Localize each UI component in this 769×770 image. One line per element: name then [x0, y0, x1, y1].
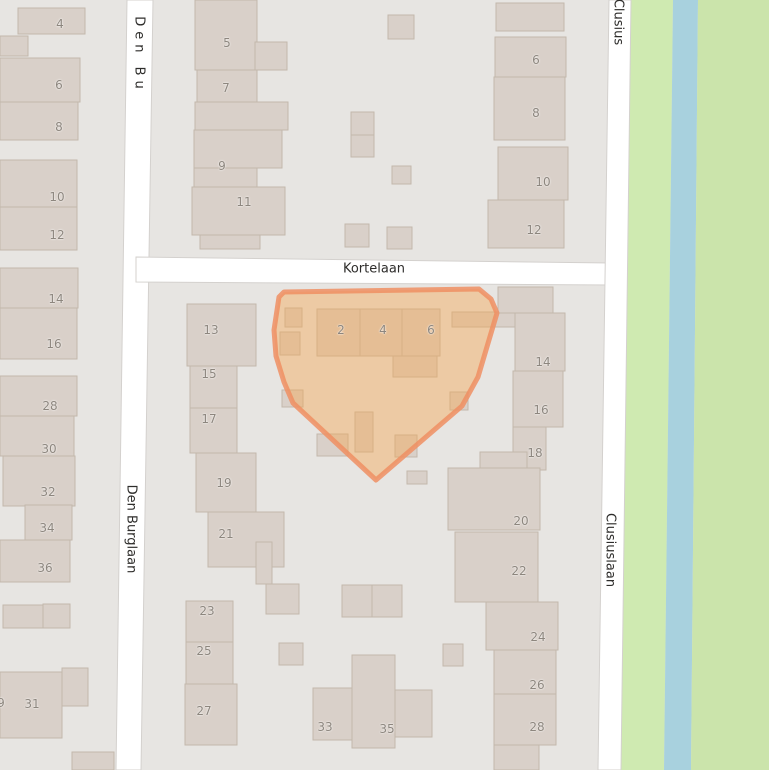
building-footprint [266, 584, 299, 614]
building-footprint [494, 694, 556, 745]
building-footprint [392, 166, 411, 184]
building-footprint [455, 532, 538, 602]
building-footprint [407, 471, 427, 484]
building-footprint [0, 36, 28, 56]
building-footprint [498, 147, 568, 200]
building-footprint [3, 605, 43, 628]
building-footprint [443, 644, 463, 666]
building-footprint [395, 690, 432, 737]
building-footprint [200, 235, 260, 249]
road-den-burglaan [116, 0, 153, 770]
building-footprint [197, 70, 257, 106]
building-footprint [0, 308, 77, 359]
building-footprint [352, 655, 395, 748]
building-footprint [0, 102, 78, 140]
building-footprint [0, 268, 78, 308]
building-footprint [495, 37, 566, 77]
building-footprint [0, 672, 62, 738]
building-footprint [0, 540, 70, 582]
building-footprint [448, 468, 540, 530]
building-footprint [0, 376, 77, 416]
building-footprint [255, 42, 287, 70]
building-footprint [186, 642, 233, 684]
building-footprint [185, 684, 237, 745]
building-footprint [190, 408, 237, 453]
building-footprint [192, 187, 285, 235]
building-footprint [194, 130, 282, 168]
building-footprint [3, 456, 75, 506]
highlight-layer [274, 289, 497, 480]
building-footprint [313, 688, 352, 740]
building-footprint [62, 668, 88, 706]
grass-east-bank [691, 0, 769, 770]
building-footprint [72, 752, 114, 770]
building-footprint [25, 505, 72, 540]
road-kortelaan [136, 257, 611, 285]
building-footprint [195, 102, 288, 130]
building-footprint [387, 227, 412, 249]
selected-parcel-kortelaan-2-4-6[interactable] [274, 289, 497, 480]
building-footprint [43, 604, 70, 628]
building-footprint [513, 371, 563, 427]
building-footprint [494, 745, 539, 770]
building-footprint [388, 15, 414, 39]
building-footprint [494, 650, 556, 694]
building-footprint [256, 542, 272, 584]
building-footprint [18, 8, 85, 34]
building-footprint [372, 585, 402, 617]
building-footprint [345, 224, 369, 247]
building-footprint [351, 112, 374, 135]
building-footprint [186, 601, 233, 642]
map-canvas [0, 0, 769, 770]
building-footprint [195, 0, 257, 70]
building-footprint [196, 453, 256, 512]
building-footprint [515, 313, 565, 371]
building-footprint [488, 200, 564, 248]
building-footprint [0, 58, 80, 102]
building-footprint [279, 643, 303, 665]
building-footprint [0, 416, 74, 456]
map-viewport[interactable]: 4681012141628303234369315791168101213151… [0, 0, 769, 770]
building-footprint [351, 135, 374, 157]
building-footprint [0, 207, 77, 250]
building-footprint [342, 585, 372, 617]
building-footprint [194, 168, 257, 188]
building-footprint [486, 602, 558, 650]
building-footprint [0, 160, 77, 207]
building-footprint [187, 304, 256, 366]
building-footprint [496, 3, 564, 31]
zones-layer [621, 0, 769, 770]
building-footprint [494, 77, 565, 140]
building-footprint [208, 512, 284, 567]
building-footprint [190, 366, 237, 408]
building-footprint [480, 452, 527, 470]
building-footprint [498, 287, 553, 313]
